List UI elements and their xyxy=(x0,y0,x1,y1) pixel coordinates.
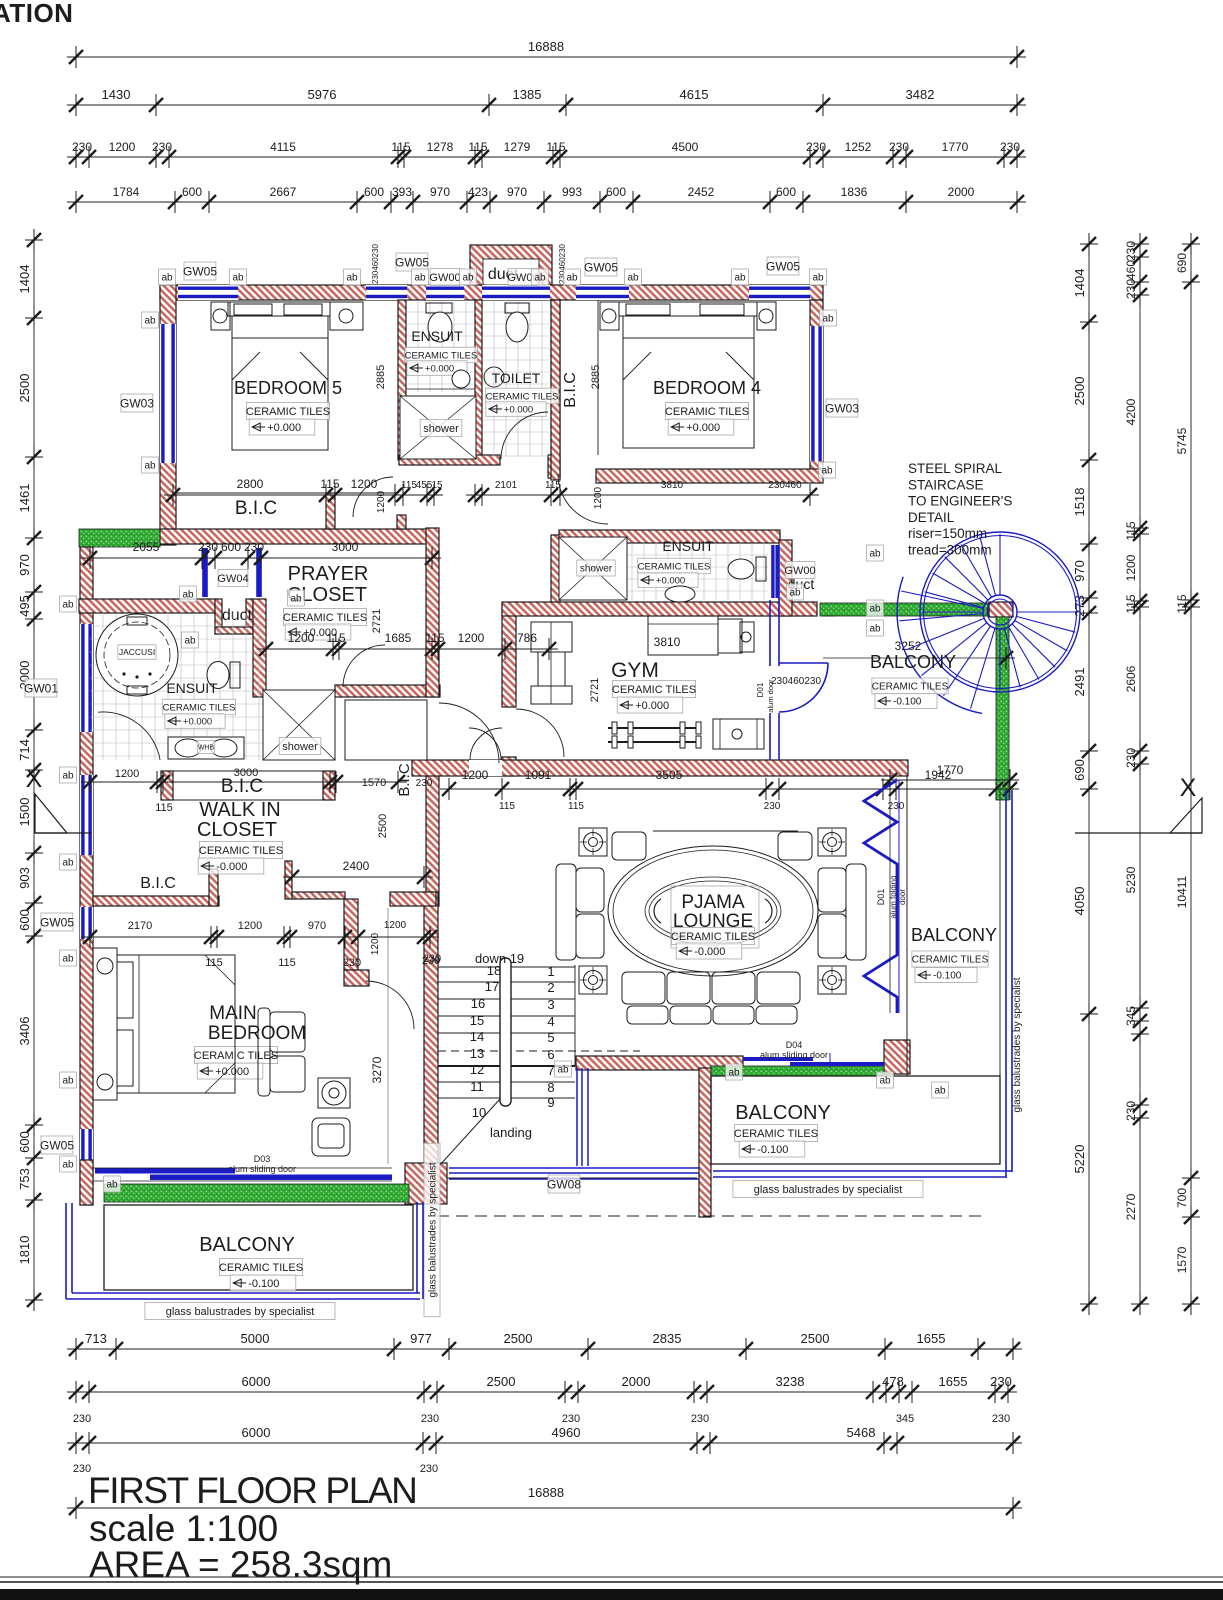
svg-text:3238: 3238 xyxy=(776,1374,805,1389)
svg-text:ab: ab xyxy=(812,273,824,284)
svg-text:ab: ab xyxy=(869,604,881,615)
svg-text:shower: shower xyxy=(580,564,613,575)
svg-text:600: 600 xyxy=(221,540,241,554)
svg-text:2000: 2000 xyxy=(948,185,975,199)
svg-text:tread=300mm: tread=300mm xyxy=(908,543,992,558)
svg-text:2721: 2721 xyxy=(371,609,383,633)
svg-text:3: 3 xyxy=(547,997,554,1012)
svg-text:ab: ab xyxy=(627,273,639,284)
svg-text:-0.000: -0.000 xyxy=(216,861,247,873)
svg-text:1430: 1430 xyxy=(102,87,131,102)
svg-text:BALCONY: BALCONY xyxy=(870,652,956,672)
svg-text:CERAMIC TILES: CERAMIC TILES xyxy=(219,1262,303,1274)
svg-text:903: 903 xyxy=(17,867,32,889)
svg-text:CERAMIC TILES: CERAMIC TILES xyxy=(665,406,749,418)
svg-text:786: 786 xyxy=(517,631,537,645)
svg-text:CERAMIC TILES: CERAMIC TILES xyxy=(405,350,478,361)
svg-text:1252: 1252 xyxy=(845,140,872,154)
svg-text:970: 970 xyxy=(1072,560,1087,582)
svg-text:WHB: WHB xyxy=(198,745,215,752)
svg-text:B.I.C: B.I.C xyxy=(235,498,277,519)
svg-text:GW05: GW05 xyxy=(395,255,429,269)
svg-text:BEDROOM 4: BEDROOM 4 xyxy=(653,378,761,398)
svg-text:5976: 5976 xyxy=(308,87,337,102)
svg-text:2101: 2101 xyxy=(495,480,518,491)
svg-text:4050: 4050 xyxy=(1072,887,1087,916)
svg-text:2000: 2000 xyxy=(622,1374,651,1389)
svg-text:600: 600 xyxy=(17,1131,32,1153)
svg-text:D04: D04 xyxy=(786,1040,803,1050)
svg-text:ab: ab xyxy=(184,636,196,647)
svg-text:15: 15 xyxy=(431,480,443,491)
svg-text:CERAMIC TILES: CERAMIC TILES xyxy=(872,682,949,693)
svg-text:700: 700 xyxy=(1175,1188,1189,1208)
svg-text:7: 7 xyxy=(547,1063,554,1078)
svg-text:CERAMIC TILES: CERAMIC TILES xyxy=(671,931,755,943)
svg-text:CERAMIC TILES: CERAMIC TILES xyxy=(486,391,559,402)
svg-text:+0.000: +0.000 xyxy=(656,575,685,586)
svg-text:970: 970 xyxy=(430,185,450,199)
svg-text:230: 230 xyxy=(562,1413,580,1425)
svg-text:1655: 1655 xyxy=(939,1374,968,1389)
svg-text:6000: 6000 xyxy=(242,1374,271,1389)
svg-text:3252: 3252 xyxy=(895,639,922,653)
svg-text:ab: ab xyxy=(62,771,74,782)
svg-text:GW05: GW05 xyxy=(584,260,618,274)
svg-text:230: 230 xyxy=(806,140,826,154)
svg-text:4615: 4615 xyxy=(680,87,709,102)
svg-text:230: 230 xyxy=(1124,1101,1138,1121)
svg-text:5000: 5000 xyxy=(241,1331,270,1346)
svg-text:MAIN: MAIN xyxy=(209,1003,257,1024)
svg-text:2885: 2885 xyxy=(375,365,387,389)
svg-text:600: 600 xyxy=(17,909,32,931)
svg-text:230: 230 xyxy=(764,801,781,812)
svg-text:CERAMIC TILES: CERAMIC TILES xyxy=(246,406,330,418)
svg-text:ENSUIT: ENSUIT xyxy=(166,680,218,696)
svg-text:ab: ab xyxy=(62,600,74,611)
svg-text:+0.000: +0.000 xyxy=(504,404,533,415)
svg-text:115: 115 xyxy=(546,140,565,154)
svg-text:970: 970 xyxy=(17,554,32,576)
svg-text:-0.100: -0.100 xyxy=(248,1278,279,1290)
svg-text:ab: ab xyxy=(232,273,244,284)
svg-text:1200: 1200 xyxy=(462,768,489,782)
svg-text:TOILET: TOILET xyxy=(492,370,541,386)
svg-text:115: 115 xyxy=(320,477,339,491)
svg-text:1570: 1570 xyxy=(362,777,386,789)
svg-text:ENSUIT: ENSUIT xyxy=(411,328,463,344)
svg-text:PRAYER: PRAYER xyxy=(288,563,369,585)
svg-text:GW03: GW03 xyxy=(120,396,154,410)
svg-text:2491: 2491 xyxy=(1072,668,1087,697)
svg-text:-0.100: -0.100 xyxy=(757,1144,788,1156)
svg-text:115: 115 xyxy=(499,801,515,812)
svg-text:1200: 1200 xyxy=(593,486,604,509)
svg-text:ab: ab xyxy=(346,273,358,284)
svg-text:230: 230 xyxy=(152,140,172,154)
svg-text:ab: ab xyxy=(106,1180,118,1191)
svg-text:600: 600 xyxy=(364,185,384,199)
svg-text:230: 230 xyxy=(421,1413,439,1425)
svg-text:1200: 1200 xyxy=(109,140,136,154)
svg-text:D01: D01 xyxy=(876,889,886,906)
svg-text:17: 17 xyxy=(485,979,499,994)
svg-text:977: 977 xyxy=(410,1331,432,1346)
svg-text:ab: ab xyxy=(534,273,546,284)
svg-text:16: 16 xyxy=(471,996,485,1011)
svg-text:+0.000: +0.000 xyxy=(215,1066,249,1078)
svg-text:3482: 3482 xyxy=(906,87,935,102)
svg-text:GW05: GW05 xyxy=(40,915,74,929)
svg-text:14: 14 xyxy=(470,1029,484,1044)
svg-text:2835: 2835 xyxy=(653,1331,682,1346)
svg-text:230: 230 xyxy=(420,1463,438,1475)
svg-text:115: 115 xyxy=(1175,594,1189,613)
svg-text:1404: 1404 xyxy=(17,265,32,294)
svg-text:230: 230 xyxy=(1124,241,1138,261)
svg-text:115: 115 xyxy=(568,801,584,812)
svg-text:1200: 1200 xyxy=(115,768,139,780)
svg-text:4500: 4500 xyxy=(672,140,699,154)
svg-text:riser=150mm: riser=150mm xyxy=(908,526,987,541)
svg-text:1500: 1500 xyxy=(17,798,32,827)
svg-text:115: 115 xyxy=(1124,594,1138,613)
svg-text:+0.000: +0.000 xyxy=(425,363,454,374)
svg-text:2500: 2500 xyxy=(487,1374,516,1389)
svg-text:230: 230 xyxy=(889,140,909,154)
svg-text:16888: 16888 xyxy=(528,1485,564,1500)
svg-text:CERAMIC TILES: CERAMIC TILES xyxy=(199,845,283,857)
svg-text:5: 5 xyxy=(547,1030,554,1045)
svg-text:230: 230 xyxy=(992,1413,1010,1425)
svg-text:15: 15 xyxy=(470,1013,484,1028)
svg-text:FIRST FLOOR PLAN: FIRST FLOOR PLAN xyxy=(88,1470,417,1511)
svg-text:12: 12 xyxy=(470,1062,484,1077)
svg-text:230460230: 230460230 xyxy=(371,243,380,284)
svg-text:1655: 1655 xyxy=(917,1331,946,1346)
svg-text:1200: 1200 xyxy=(384,920,407,931)
svg-text:115: 115 xyxy=(468,140,487,154)
svg-text:3270: 3270 xyxy=(370,1056,384,1083)
svg-text:1200: 1200 xyxy=(288,631,315,645)
svg-text:2055: 2055 xyxy=(133,540,160,554)
svg-text:door: door xyxy=(898,889,907,905)
svg-text:alum sliding door: alum sliding door xyxy=(228,1164,296,1174)
svg-text:5220: 5220 xyxy=(1072,1145,1087,1174)
svg-text:ab: ab xyxy=(462,273,474,284)
svg-text:STEEL SPIRAL: STEEL SPIRAL xyxy=(908,461,1003,476)
svg-text:ab: ab xyxy=(557,1065,569,1076)
svg-text:GW05: GW05 xyxy=(766,259,800,273)
svg-text:duct: duct xyxy=(222,607,253,624)
svg-text:460: 460 xyxy=(1124,260,1138,280)
svg-text:230460: 230460 xyxy=(768,480,802,491)
svg-text:scale 1:100: scale 1:100 xyxy=(89,1508,278,1549)
svg-text:GW05: GW05 xyxy=(40,1138,74,1152)
svg-text:115: 115 xyxy=(155,802,173,814)
svg-text:970: 970 xyxy=(507,185,527,199)
svg-text:glass balustrades by specialis: glass balustrades by specialist xyxy=(428,1162,439,1297)
svg-text:970: 970 xyxy=(308,920,326,932)
svg-text:9: 9 xyxy=(547,1095,554,1110)
svg-text:8: 8 xyxy=(547,1080,554,1095)
svg-text:ab: ab xyxy=(822,314,834,325)
svg-text:478: 478 xyxy=(882,1374,904,1389)
svg-text:600: 600 xyxy=(776,185,796,199)
svg-text:CERAMIC TILES: CERAMIC TILES xyxy=(734,1128,818,1140)
svg-text:115: 115 xyxy=(1124,521,1138,540)
svg-text:10: 10 xyxy=(472,1105,486,1120)
svg-text:4: 4 xyxy=(547,1014,554,1029)
svg-text:TO ENGINEER'S: TO ENGINEER'S xyxy=(908,494,1012,509)
svg-text:115: 115 xyxy=(391,140,410,154)
svg-text:glass balustrades by specialis: glass balustrades by specialist xyxy=(1012,977,1023,1112)
svg-text:2500: 2500 xyxy=(801,1331,830,1346)
svg-text:2500: 2500 xyxy=(1072,377,1087,406)
svg-text:GW01: GW01 xyxy=(24,681,58,695)
svg-text:230: 230 xyxy=(422,955,440,967)
svg-text:1200: 1200 xyxy=(351,477,378,491)
svg-text:ab: ab xyxy=(62,1076,74,1087)
svg-text:345: 345 xyxy=(1124,1006,1138,1026)
svg-text:+0.000: +0.000 xyxy=(267,422,301,434)
svg-text:1: 1 xyxy=(547,964,554,979)
svg-text:753: 753 xyxy=(17,1168,32,1190)
svg-text:455: 455 xyxy=(416,480,433,491)
svg-text:2606: 2606 xyxy=(1124,665,1138,692)
svg-text:230: 230 xyxy=(198,540,218,554)
svg-text:10411: 10411 xyxy=(1175,875,1189,908)
svg-text:CERAMIC TILES: CERAMIC TILES xyxy=(283,612,367,624)
svg-text:CERAMIC TILES: CERAMIC TILES xyxy=(638,561,711,572)
svg-text:ab: ab xyxy=(62,858,74,869)
svg-text:393: 393 xyxy=(392,185,412,199)
svg-text:230: 230 xyxy=(343,957,361,969)
svg-text:1278: 1278 xyxy=(427,140,454,154)
svg-text:690: 690 xyxy=(1175,253,1189,273)
svg-text:shower: shower xyxy=(423,423,459,435)
svg-text:6000: 6000 xyxy=(242,1425,271,1440)
svg-text:1461: 1461 xyxy=(17,484,32,513)
svg-text:690: 690 xyxy=(1072,759,1087,781)
svg-text:115: 115 xyxy=(278,957,296,969)
svg-text:4115: 4115 xyxy=(270,140,296,154)
svg-text:glass balustrades by specialis: glass balustrades by specialist xyxy=(166,1306,315,1318)
svg-text:BALCONY: BALCONY xyxy=(735,1102,831,1124)
svg-text:ab: ab xyxy=(728,1068,740,1079)
svg-text:1836: 1836 xyxy=(841,185,868,199)
svg-text:1770: 1770 xyxy=(937,763,964,777)
svg-text:2270: 2270 xyxy=(1124,1193,1138,1220)
svg-text:ab: ab xyxy=(734,273,746,284)
svg-text:115: 115 xyxy=(545,480,561,491)
svg-text:ab: ab xyxy=(182,590,194,601)
svg-text:2: 2 xyxy=(547,980,554,995)
svg-text:ab: ab xyxy=(789,588,801,599)
svg-text:1770: 1770 xyxy=(942,140,969,154)
svg-text:-0.000: -0.000 xyxy=(694,946,725,958)
svg-text:ab: ab xyxy=(144,461,156,472)
svg-text:GYM: GYM xyxy=(611,659,659,682)
svg-text:495: 495 xyxy=(17,595,32,617)
svg-text:600: 600 xyxy=(182,185,202,199)
svg-text:230: 230 xyxy=(244,540,264,554)
svg-text:landing: landing xyxy=(490,1125,532,1140)
svg-text:1200: 1200 xyxy=(458,631,485,645)
svg-text:1685: 1685 xyxy=(385,631,412,645)
svg-text:2885: 2885 xyxy=(590,365,602,389)
svg-text:JACCUSI: JACCUSI xyxy=(119,647,155,657)
svg-text:1784: 1784 xyxy=(113,185,140,199)
svg-text:115: 115 xyxy=(326,631,345,645)
svg-text:GW05: GW05 xyxy=(183,264,217,278)
svg-text:GW08: GW08 xyxy=(547,1177,581,1191)
svg-text:1200: 1200 xyxy=(370,932,381,955)
svg-text:230: 230 xyxy=(73,1413,91,1425)
svg-text:ab: ab xyxy=(869,624,881,635)
svg-text:CERAMIC TILES: CERAMIC TILES xyxy=(194,1050,278,1062)
svg-text:714: 714 xyxy=(17,739,32,761)
svg-text:ab: ab xyxy=(161,273,173,284)
svg-text:X: X xyxy=(1180,774,1197,802)
svg-text:BALCONY: BALCONY xyxy=(911,925,997,945)
svg-text:1385: 1385 xyxy=(513,87,542,102)
svg-text:CLOSET: CLOSET xyxy=(197,819,277,841)
svg-text:600: 600 xyxy=(606,185,626,199)
svg-text:GW03: GW03 xyxy=(825,401,859,415)
svg-text:3810: 3810 xyxy=(654,635,681,649)
svg-text:B.I.C: B.I.C xyxy=(221,776,263,797)
svg-text:X: X xyxy=(26,765,43,793)
svg-text:3406: 3406 xyxy=(17,1017,32,1046)
svg-text:230: 230 xyxy=(1000,140,1020,154)
svg-text:3000: 3000 xyxy=(332,540,359,554)
svg-text:18: 18 xyxy=(487,963,501,978)
svg-text:3505: 3505 xyxy=(656,768,683,782)
svg-text:ab: ab xyxy=(62,954,74,965)
svg-text:ab: ab xyxy=(934,1086,946,1097)
svg-text:ab: ab xyxy=(290,594,302,605)
svg-text:230: 230 xyxy=(691,1413,709,1425)
svg-text:230: 230 xyxy=(990,1374,1012,1389)
svg-text:1200: 1200 xyxy=(376,490,387,513)
svg-text:4200: 4200 xyxy=(1124,398,1138,425)
svg-text:230460230: 230460230 xyxy=(771,676,821,687)
svg-text:B.I.C: B.I.C xyxy=(396,763,413,797)
svg-text:shower: shower xyxy=(282,741,318,753)
svg-text:1404: 1404 xyxy=(1072,269,1087,298)
svg-text:3000: 3000 xyxy=(234,767,258,779)
svg-text:115: 115 xyxy=(425,631,444,645)
svg-text:ab: ab xyxy=(869,549,881,560)
svg-text:11: 11 xyxy=(470,1079,484,1094)
svg-text:1570: 1570 xyxy=(1175,1246,1189,1273)
svg-text:+0.000: +0.000 xyxy=(183,716,212,727)
svg-text:2500: 2500 xyxy=(377,814,389,838)
svg-text:WALK IN: WALK IN xyxy=(199,799,281,821)
svg-text:2721: 2721 xyxy=(589,678,601,702)
svg-text:D03: D03 xyxy=(254,1154,271,1164)
svg-text:AREA = 258.3sqm: AREA = 258.3sqm xyxy=(89,1544,392,1585)
svg-text:ab: ab xyxy=(144,316,156,327)
svg-text:230: 230 xyxy=(1124,748,1138,768)
svg-text:2400: 2400 xyxy=(343,859,370,873)
svg-text:ENSUIT: ENSUIT xyxy=(662,538,714,554)
svg-text:5468: 5468 xyxy=(847,1425,876,1440)
svg-text:713: 713 xyxy=(85,1331,107,1346)
svg-text:ab: ab xyxy=(566,273,578,284)
svg-text:+0.000: +0.000 xyxy=(635,700,669,712)
svg-text:115: 115 xyxy=(205,957,223,969)
svg-text:CERAMIC TILES: CERAMIC TILES xyxy=(912,955,989,966)
svg-text:BALCONY: BALCONY xyxy=(199,1234,295,1256)
svg-text:5230: 5230 xyxy=(1124,866,1138,893)
svg-text:CERAMIC TILES: CERAMIC TILES xyxy=(612,684,696,696)
svg-text:BEDROOM 5: BEDROOM 5 xyxy=(234,378,342,398)
svg-text:2170: 2170 xyxy=(128,920,152,932)
svg-text:ATION: ATION xyxy=(0,0,73,28)
svg-text:B.I.C: B.I.C xyxy=(562,372,579,408)
svg-text:3810: 3810 xyxy=(661,480,684,491)
svg-text:ab: ab xyxy=(821,466,833,477)
svg-text:230: 230 xyxy=(416,778,433,789)
svg-text:2500: 2500 xyxy=(17,374,32,403)
svg-text:993: 993 xyxy=(562,185,582,199)
svg-text:-0.100: -0.100 xyxy=(933,971,962,982)
svg-text:glass balustrades by specialis: glass balustrades by specialist xyxy=(754,1184,903,1196)
svg-text:GW00: GW00 xyxy=(429,272,460,284)
svg-text:BEDROOM: BEDROOM xyxy=(208,1023,306,1044)
svg-text:2667: 2667 xyxy=(270,185,297,199)
svg-text:ab: ab xyxy=(879,1076,891,1087)
svg-text:STAIRCASE: STAIRCASE xyxy=(908,477,984,492)
svg-text:423: 423 xyxy=(468,185,488,199)
svg-text:6: 6 xyxy=(547,1047,554,1062)
svg-text:1279: 1279 xyxy=(504,140,531,154)
svg-text:2800: 2800 xyxy=(237,477,264,491)
svg-text:D01: D01 xyxy=(756,682,765,697)
svg-text:16888: 16888 xyxy=(528,39,564,54)
svg-text:ab: ab xyxy=(414,273,426,284)
svg-text:B.I.C: B.I.C xyxy=(140,875,176,892)
svg-text:1518: 1518 xyxy=(1072,488,1087,517)
svg-text:230: 230 xyxy=(1124,279,1138,299)
svg-text:PJAMA: PJAMA xyxy=(681,892,745,913)
svg-text:5745: 5745 xyxy=(1175,427,1189,454)
svg-text:1200: 1200 xyxy=(238,920,262,932)
svg-text:1810: 1810 xyxy=(17,1236,32,1265)
svg-text:-0.100: -0.100 xyxy=(893,697,922,708)
svg-text:2500: 2500 xyxy=(504,1331,533,1346)
svg-text:CERAMIC TILES: CERAMIC TILES xyxy=(163,702,236,713)
svg-text:13: 13 xyxy=(470,1046,484,1061)
svg-text:230: 230 xyxy=(72,140,92,154)
svg-text:+0.000: +0.000 xyxy=(686,422,720,434)
svg-text:ab: ab xyxy=(62,1160,74,1171)
svg-text:1091: 1091 xyxy=(525,768,552,782)
svg-text:2452: 2452 xyxy=(688,185,715,199)
svg-text:DETAIL: DETAIL xyxy=(908,510,955,525)
svg-text:4960: 4960 xyxy=(552,1425,581,1440)
svg-text:345: 345 xyxy=(896,1413,914,1425)
svg-text:GW04: GW04 xyxy=(217,573,248,585)
svg-text:1200: 1200 xyxy=(1124,554,1138,581)
svg-text:alum sliding door: alum sliding door xyxy=(760,1050,828,1060)
